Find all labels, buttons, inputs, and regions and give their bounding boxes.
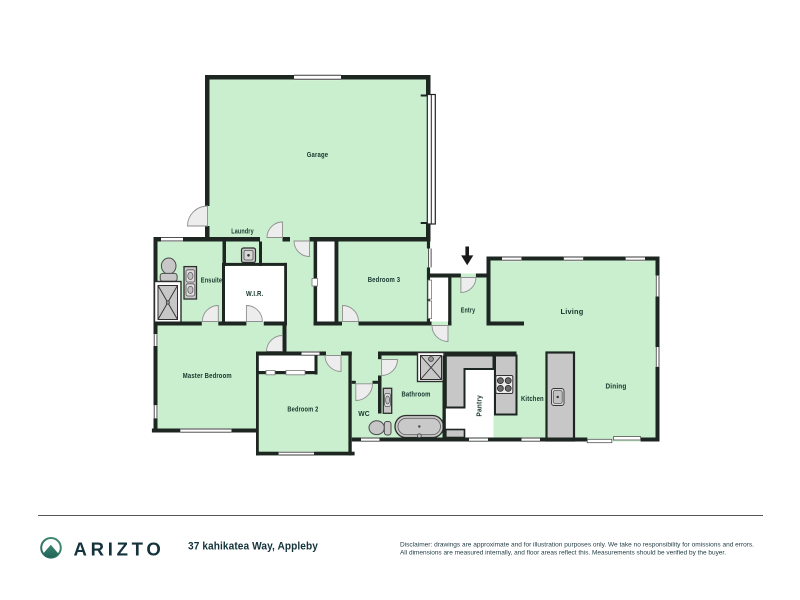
svg-text:Living: Living xyxy=(561,307,584,316)
svg-text:Laundry: Laundry xyxy=(231,227,254,236)
svg-text:ARIZTO: ARIZTO xyxy=(74,539,165,559)
svg-text:WC: WC xyxy=(358,409,370,418)
svg-text:Entry: Entry xyxy=(461,306,475,315)
svg-text:Dining: Dining xyxy=(606,382,627,391)
svg-text:Disclaimer: drawings are appro: Disclaimer: drawings are approximate and… xyxy=(400,541,754,548)
svg-text:Kitchen: Kitchen xyxy=(521,394,544,403)
svg-text:Ensuite: Ensuite xyxy=(201,276,222,285)
svg-text:Bedroom 2: Bedroom 2 xyxy=(287,405,318,414)
svg-text:Master Bedroom: Master Bedroom xyxy=(183,371,232,380)
svg-text:All dimensions are measured in: All dimensions are measured internally, … xyxy=(400,549,726,556)
svg-text:Bathroom: Bathroom xyxy=(401,389,430,398)
svg-text:W.I.R.: W.I.R. xyxy=(246,289,263,298)
svg-text:Bedroom 3: Bedroom 3 xyxy=(368,275,401,284)
svg-text:Garage: Garage xyxy=(307,150,329,159)
svg-text:Pantry: Pantry xyxy=(475,395,484,417)
svg-text:37 kahikatea Way, Appleby: 37 kahikatea Way, Appleby xyxy=(188,540,319,552)
